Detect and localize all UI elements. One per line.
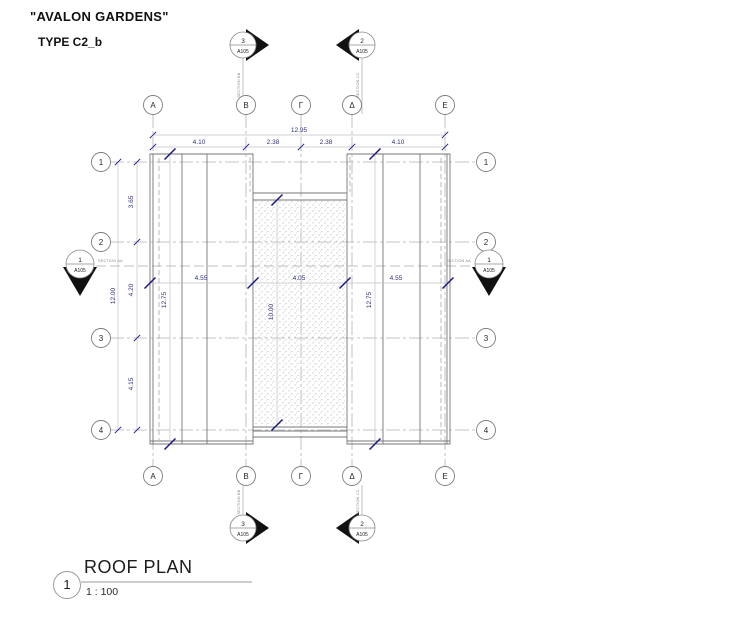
section-number: 1	[78, 257, 82, 264]
section-line-label: SECTION AA	[98, 259, 123, 263]
section-line-label: SECTION BB	[237, 72, 241, 97]
dim-left-seg-1: 3.65	[128, 195, 135, 208]
section-sheet: A105	[237, 532, 249, 538]
plan-drawing: 12.95 4.10 2.38 2.38 4.10 12.00 3.65 4.2…	[0, 0, 750, 630]
grid-label: B	[243, 472, 248, 481]
view-title: ROOF PLAN	[84, 557, 193, 578]
section-marker-top-right: 2 A105 SECTION CC	[336, 29, 375, 98]
grid-label: 3	[99, 334, 104, 343]
grid-label: 2	[99, 238, 104, 247]
grid-label: 4	[99, 426, 104, 435]
unit-type-label: TYPE C2_b	[38, 35, 102, 49]
section-number: 2	[360, 38, 364, 45]
grid-label: Δ	[349, 101, 355, 110]
section-marker-bottom-left: 3 A105 SECTION BB	[230, 489, 269, 544]
grid-label: B	[243, 101, 248, 110]
grid-label: 1	[484, 158, 489, 167]
dim-left-seg-3: 4.15	[128, 377, 135, 390]
section-number: 3	[241, 38, 245, 45]
grid-label: E	[442, 472, 447, 481]
section-sheet: A105	[356, 49, 368, 55]
right-roof-panel	[347, 154, 450, 444]
dim-panel-mid-length: 10.00	[268, 303, 275, 320]
section-marker-top-left: 3 A105 SECTION BB	[230, 29, 269, 98]
grid-label: 4	[484, 426, 489, 435]
section-number: 1	[487, 257, 491, 264]
dim-left-total: 12.00	[110, 287, 117, 304]
dim-mid-seg-2: 4.05	[293, 275, 306, 282]
dim-top-seg-1: 4.10	[193, 139, 206, 146]
grid-label: 2	[484, 238, 489, 247]
dim-top-seg-2: 2.38	[267, 139, 280, 146]
dim-panel-right-length: 12.75	[366, 291, 373, 308]
grid-label: A	[150, 472, 156, 481]
dim-mid-seg-1: 4.55	[195, 275, 208, 282]
section-sheet: A105	[483, 268, 495, 274]
dim-top-seg-4: 4.10	[392, 139, 405, 146]
section-line-label: SECTION AA	[446, 259, 471, 263]
grid-label: A	[150, 101, 156, 110]
dim-top-total: 12.95	[291, 127, 308, 134]
grid-label: Γ	[299, 472, 304, 481]
section-marker-bottom-right: 2 A105 SECTION CC	[336, 489, 375, 544]
section-line-label: SECTION BB	[237, 489, 241, 514]
section-number: 3	[241, 521, 245, 528]
project-title: "AVALON GARDENS"	[30, 9, 169, 24]
dim-left-seg-2: 4.20	[128, 283, 135, 296]
section-line-label: SECTION CC	[356, 72, 360, 97]
dim-mid-seg-3: 4.55	[390, 275, 403, 282]
dim-top-seg-3: 2.38	[320, 139, 333, 146]
section-marker-side-right: 1 A105 SECTION AA	[446, 250, 506, 296]
section-sheet: A105	[237, 49, 249, 55]
grid-label: 1	[99, 158, 104, 167]
section-sheet: A105	[356, 532, 368, 538]
view-number-bubble: 1	[53, 571, 81, 599]
dim-panel-left-length: 12.75	[161, 291, 168, 308]
section-sheet: A105	[74, 268, 86, 274]
section-number: 2	[360, 521, 364, 528]
section-line-label: SECTION CC	[356, 489, 360, 514]
roof-plan-sheet: 12.95 4.10 2.38 2.38 4.10 12.00 3.65 4.2…	[0, 0, 750, 630]
grid-label: E	[442, 101, 447, 110]
grid-label: 3	[484, 334, 489, 343]
grid-label: Δ	[349, 472, 355, 481]
grid-label: Γ	[299, 101, 304, 110]
view-title-underline	[79, 581, 252, 583]
view-scale: 1 : 100	[86, 586, 118, 598]
